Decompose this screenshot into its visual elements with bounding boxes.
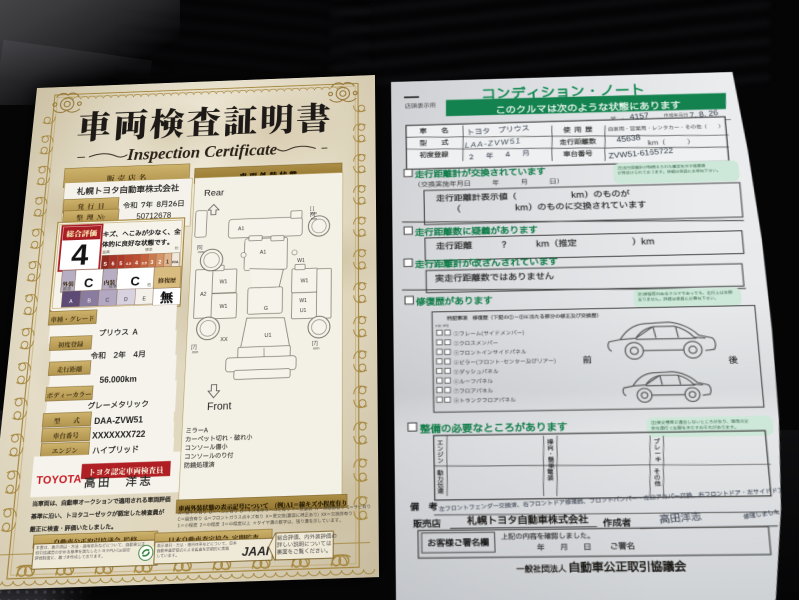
svg-text:Front: Front: [207, 400, 232, 413]
svg-text:G: G: [264, 305, 269, 311]
svg-text:A1: A1: [238, 226, 245, 232]
svg-text:A2: A2: [200, 291, 207, 297]
svg-text:XXXXXXX722: XXXXXXX722: [92, 430, 146, 442]
svg-text:DAA-ZVW51: DAA-ZVW51: [94, 415, 143, 426]
svg-text:U1: U1: [264, 332, 272, 339]
svg-text:Rear: Rear: [204, 187, 225, 198]
svg-text:R/A: R/A: [172, 260, 179, 265]
svg-text:W1: W1: [219, 303, 228, 309]
svg-text:mm: mm: [192, 350, 199, 355]
svg-text:JAAI: JAAI: [242, 545, 270, 560]
svg-text:mm: mm: [313, 346, 320, 351]
svg-text:W1: W1: [219, 279, 228, 285]
svg-text:E: E: [142, 296, 146, 302]
svg-text:C: C: [83, 277, 94, 291]
svg-text:4.5: 4.5: [126, 262, 132, 267]
svg-text:U1: U1: [300, 307, 307, 313]
svg-text:3.5: 3.5: [141, 261, 147, 266]
svg-text:XX: XX: [220, 336, 229, 343]
svg-text:A1: A1: [260, 249, 267, 255]
svg-text:W1: W1: [301, 278, 309, 284]
svg-text:mm: mm: [311, 217, 317, 221]
svg-text:B: B: [87, 298, 91, 304]
svg-text:56.000km: 56.000km: [99, 374, 137, 385]
svg-text:W1: W1: [297, 257, 305, 263]
svg-text:W1: W1: [299, 297, 307, 303]
svg-text:C: C: [130, 276, 141, 290]
svg-text:TOYOTA: TOYOTA: [36, 473, 83, 487]
svg-text:mm: mm: [198, 250, 205, 255]
svg-text:mm: mm: [311, 211, 317, 215]
